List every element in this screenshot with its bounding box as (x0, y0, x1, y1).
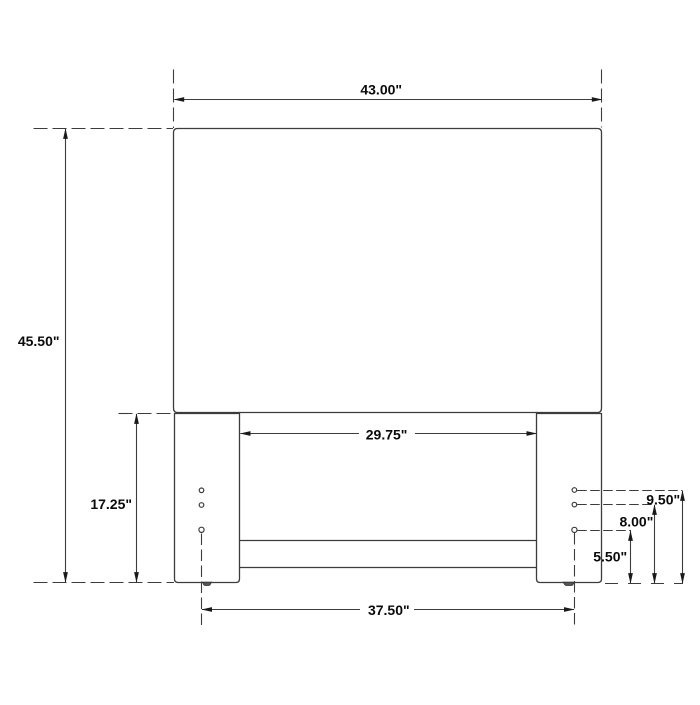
svg-text:37.50": 37.50" (368, 602, 410, 618)
svg-text:45.50": 45.50" (18, 333, 60, 349)
svg-text:43.00": 43.00" (360, 82, 402, 98)
svg-text:9.50": 9.50" (646, 492, 680, 508)
svg-text:5.50": 5.50" (593, 548, 627, 564)
svg-text:17.25": 17.25" (90, 496, 132, 512)
svg-text:8.00": 8.00" (619, 513, 653, 529)
svg-text:29.75": 29.75" (366, 426, 408, 442)
